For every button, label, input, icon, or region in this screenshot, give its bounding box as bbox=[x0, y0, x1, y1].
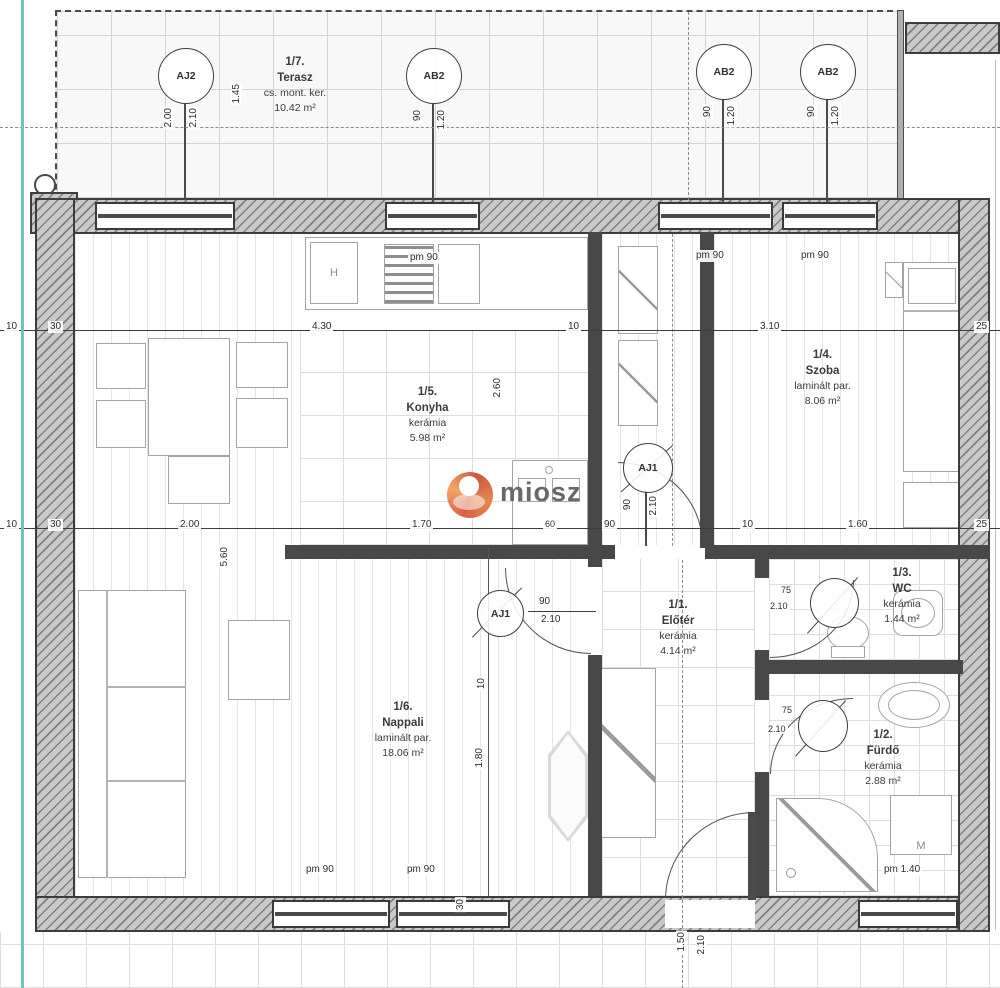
aj1-nappali-width: 90 bbox=[537, 596, 552, 608]
terrace-split-line bbox=[688, 12, 689, 200]
dining-chair-5 bbox=[168, 456, 230, 504]
aj2-leader bbox=[184, 104, 186, 200]
wall-eloter-wet-b bbox=[755, 650, 769, 700]
tv-cabinet bbox=[228, 620, 290, 700]
wall-right bbox=[958, 198, 990, 932]
ab2-2-width: 90 bbox=[702, 104, 713, 119]
wc-door-width: 75 bbox=[779, 585, 793, 595]
sofa-cushion-line-1 bbox=[106, 686, 186, 688]
wc-name: WC bbox=[862, 582, 942, 598]
tag-kitchen-window: pm 90 bbox=[408, 252, 440, 264]
nappali-material: laminált par. bbox=[348, 731, 458, 746]
wardrobe-corridor-2 bbox=[618, 340, 658, 426]
ab2-1-label: AB2 bbox=[423, 70, 444, 82]
wall-eloter-wet-c bbox=[755, 772, 769, 896]
wc-area: 1.44 m² bbox=[862, 612, 942, 627]
bed-fold-corner bbox=[885, 262, 903, 298]
neighbor-edge-line bbox=[995, 60, 996, 930]
furdo-material: kerámia bbox=[838, 759, 928, 774]
tag-szoba-window-2: pm 90 bbox=[799, 250, 831, 262]
room-label-wc: 1/3. WC kerámia 1.44 m² bbox=[862, 566, 942, 627]
wall-kitchen-peninsula bbox=[285, 545, 602, 559]
dining-chair-1 bbox=[96, 343, 146, 389]
nightstand bbox=[903, 482, 961, 528]
ab2-2-height: 1.20 bbox=[726, 104, 737, 127]
terrace-deck bbox=[55, 10, 903, 200]
fridge-label: H bbox=[330, 267, 338, 279]
aj2-label: AJ2 bbox=[176, 70, 195, 82]
eloter-name: Előtér bbox=[628, 614, 728, 630]
furdo-door-height: 2.10 bbox=[766, 724, 788, 734]
ab2-2-circle: AB2 bbox=[696, 44, 752, 100]
shower-drain bbox=[786, 868, 796, 878]
tag-nappali-window-2: pm 90 bbox=[405, 864, 437, 876]
dim-r2-170: 1.70 bbox=[410, 519, 433, 531]
washing-machine: M bbox=[890, 795, 952, 855]
furdo-basin-bowl bbox=[888, 690, 940, 720]
dim-r2-90: 90 bbox=[602, 519, 617, 531]
kitchen-appliance bbox=[438, 244, 480, 304]
dim-r1-10b: 10 bbox=[566, 321, 581, 333]
ab2-3-label: AB2 bbox=[817, 66, 838, 78]
kitchen-window bbox=[385, 202, 480, 230]
dim-r2-30: 30 bbox=[48, 519, 63, 531]
wc-door-circle bbox=[810, 578, 859, 628]
szoba-area: 8.06 m² bbox=[765, 394, 880, 409]
vdim-10: 10 bbox=[476, 676, 487, 691]
ab2-2-leader bbox=[722, 100, 724, 202]
bed-pillow bbox=[908, 268, 956, 304]
wc-material: kerámia bbox=[862, 597, 942, 612]
aj1-szoba-width: 90 bbox=[622, 497, 633, 512]
furdo-window bbox=[858, 900, 958, 928]
tag-furdo-window: pm 1.40 bbox=[882, 864, 922, 876]
bed-blanket-line bbox=[903, 310, 961, 312]
kitchen-faucet bbox=[545, 466, 553, 474]
ab2-3-width: 90 bbox=[806, 104, 817, 119]
miosz-watermark-text: miosz bbox=[500, 477, 582, 508]
eloter-material: kerámia bbox=[628, 629, 728, 644]
kitchen-fridge: H bbox=[310, 242, 358, 304]
ab2-1-width: 90 bbox=[412, 108, 423, 123]
ab2-2-label: AB2 bbox=[713, 66, 734, 78]
wall-szoba-eloter-a bbox=[602, 545, 615, 559]
dim-r2-60: 60 bbox=[543, 519, 557, 529]
furdo-door-width: 75 bbox=[780, 705, 794, 715]
konyha-area: 5.98 m² bbox=[375, 431, 480, 446]
aj2-height: 2.10 bbox=[188, 106, 199, 129]
entrance-door-leaf bbox=[748, 812, 756, 900]
ab2-3-height: 1.20 bbox=[830, 104, 841, 127]
konyha-id: 1/5. bbox=[375, 385, 480, 401]
wall-bottom bbox=[35, 896, 990, 932]
wardrobe-corridor-1 bbox=[618, 246, 658, 334]
aj1-szoba-leader bbox=[645, 490, 647, 546]
dim-r1-30: 30 bbox=[48, 321, 63, 333]
aj1-nappali-dimline bbox=[528, 611, 596, 612]
szoba-id: 1/4. bbox=[765, 348, 880, 364]
miosz-logo-icon bbox=[447, 472, 493, 518]
terrace-door-window bbox=[95, 202, 235, 230]
wall-szoba-left bbox=[700, 232, 714, 548]
vdim-30: 30 bbox=[455, 897, 466, 912]
vdim-150: 1.50 bbox=[676, 930, 687, 953]
furdo-door-circle bbox=[798, 700, 848, 752]
vdim-180: 1.80 bbox=[474, 746, 485, 769]
terasz-material: cs. mont. ker. bbox=[235, 86, 355, 101]
aj1-nappali-height: 2.10 bbox=[539, 614, 562, 626]
dimline-upper bbox=[0, 330, 1000, 331]
nappali-window-1 bbox=[272, 900, 390, 928]
vdim-560: 5.60 bbox=[219, 545, 230, 568]
aj1-nappali-label: AJ1 bbox=[491, 608, 510, 620]
dim-r2-10b: 10 bbox=[740, 519, 755, 531]
wall-szoba-eloter-b bbox=[705, 545, 990, 559]
nappali-name: Nappali bbox=[348, 716, 458, 732]
aj1-szoba-circle: AJ1 bbox=[623, 443, 673, 493]
dim-r2-25: 25 bbox=[974, 519, 989, 531]
terasz-id: 1/7. bbox=[235, 55, 355, 71]
dim-r2-10a: 10 bbox=[4, 519, 19, 531]
wall-nappali-eloter-a bbox=[588, 559, 602, 567]
dining-chair-4 bbox=[236, 398, 288, 448]
axis-line-horizontal bbox=[0, 127, 1000, 128]
dim-r1-25: 25 bbox=[974, 321, 989, 333]
konyha-name: Konyha bbox=[375, 401, 480, 417]
dim-r1-430: 4.30 bbox=[310, 321, 333, 333]
ab2-1-height: 1.20 bbox=[436, 108, 447, 131]
furdo-name: Fürdő bbox=[838, 744, 928, 760]
tag-szoba-window-1: pm 90 bbox=[694, 250, 726, 262]
wardrobe-eloter bbox=[600, 668, 656, 838]
room-label-szoba: 1/4. Szoba laminált par. 8.06 m² bbox=[765, 348, 880, 409]
sofa-back-line bbox=[106, 590, 108, 878]
szoba-material: laminált par. bbox=[765, 379, 880, 394]
corridor-axis-line bbox=[672, 234, 673, 546]
wall-kitchen-right bbox=[588, 232, 602, 548]
wc-id: 1/3. bbox=[862, 566, 942, 582]
dim-r1-310: 3.10 bbox=[758, 321, 781, 333]
room-label-nappali: 1/6. Nappali laminált par. 18.06 m² bbox=[348, 700, 458, 761]
dim-r1-10a: 10 bbox=[4, 321, 19, 333]
nappali-area: 18.06 m² bbox=[348, 746, 458, 761]
szoba-window-2 bbox=[782, 202, 878, 230]
nappali-id: 1/6. bbox=[348, 700, 458, 716]
floor-plan: 1/7. Terasz cs. mont. ker. 10.42 m² AJ2 … bbox=[0, 0, 1000, 988]
dim-r2-160: 1.60 bbox=[846, 519, 869, 531]
ab2-3-circle: AB2 bbox=[800, 44, 856, 100]
wall-wc-furdo bbox=[769, 660, 963, 674]
sofa-cushion-line-2 bbox=[106, 780, 186, 782]
ab2-3-leader bbox=[826, 100, 828, 202]
wall-nappali-eloter-b bbox=[588, 655, 602, 896]
room-label-konyha: 1/5. Konyha kerámia 5.98 m² bbox=[375, 385, 480, 446]
wall-eloter-wet-a bbox=[755, 559, 769, 578]
eloter-id: 1/1. bbox=[628, 598, 728, 614]
wall-left bbox=[35, 198, 75, 932]
wc-door-height: 2.10 bbox=[768, 601, 790, 611]
room-label-eloter: 1/1. Előtér kerámia 4.14 m² bbox=[628, 598, 728, 659]
eloter-area: 4.14 m² bbox=[628, 644, 728, 659]
neighbor-wall-stub bbox=[905, 22, 1000, 54]
aj2-circle: AJ2 bbox=[158, 48, 214, 104]
tag-nappali-window-1: pm 90 bbox=[304, 864, 336, 876]
vdim-260: 2.60 bbox=[492, 376, 503, 399]
dim-r2-200: 2.00 bbox=[178, 519, 201, 531]
property-boundary-line bbox=[21, 0, 24, 988]
terasz-area: 10.42 m² bbox=[235, 101, 355, 116]
room-label-furdo: 1/2. Fürdő kerámia 2.88 m² bbox=[838, 728, 928, 789]
toilet-cistern bbox=[831, 646, 865, 658]
room-label-terasz: 1/7. Terasz cs. mont. ker. 10.42 m² bbox=[235, 55, 355, 116]
aj2-width: 2.00 bbox=[163, 106, 174, 129]
dining-table bbox=[148, 338, 230, 456]
terrace-right-wall bbox=[897, 10, 904, 200]
dining-chair-2 bbox=[96, 400, 146, 448]
washer-label: M bbox=[916, 840, 925, 852]
terasz-name: Terasz bbox=[235, 71, 355, 87]
dining-chair-3 bbox=[236, 342, 288, 388]
ab2-1-circle: AB2 bbox=[406, 48, 462, 104]
nappali-window-2 bbox=[396, 900, 510, 928]
furdo-id: 1/2. bbox=[838, 728, 928, 744]
aj1-szoba-height: 2.10 bbox=[648, 494, 659, 517]
szoba-name: Szoba bbox=[765, 364, 880, 380]
vdim-210: 2.10 bbox=[696, 933, 707, 956]
pavement-bottom bbox=[0, 932, 1000, 988]
entrance-opening bbox=[665, 900, 755, 928]
konyha-material: kerámia bbox=[375, 416, 480, 431]
ab2-1-leader bbox=[432, 104, 434, 202]
aj1-nappali-circle: AJ1 bbox=[477, 590, 524, 637]
sofa bbox=[78, 590, 186, 878]
szoba-window-1 bbox=[658, 202, 773, 230]
furdo-area: 2.88 m² bbox=[838, 774, 928, 789]
aj1-szoba-label: AJ1 bbox=[638, 462, 657, 474]
